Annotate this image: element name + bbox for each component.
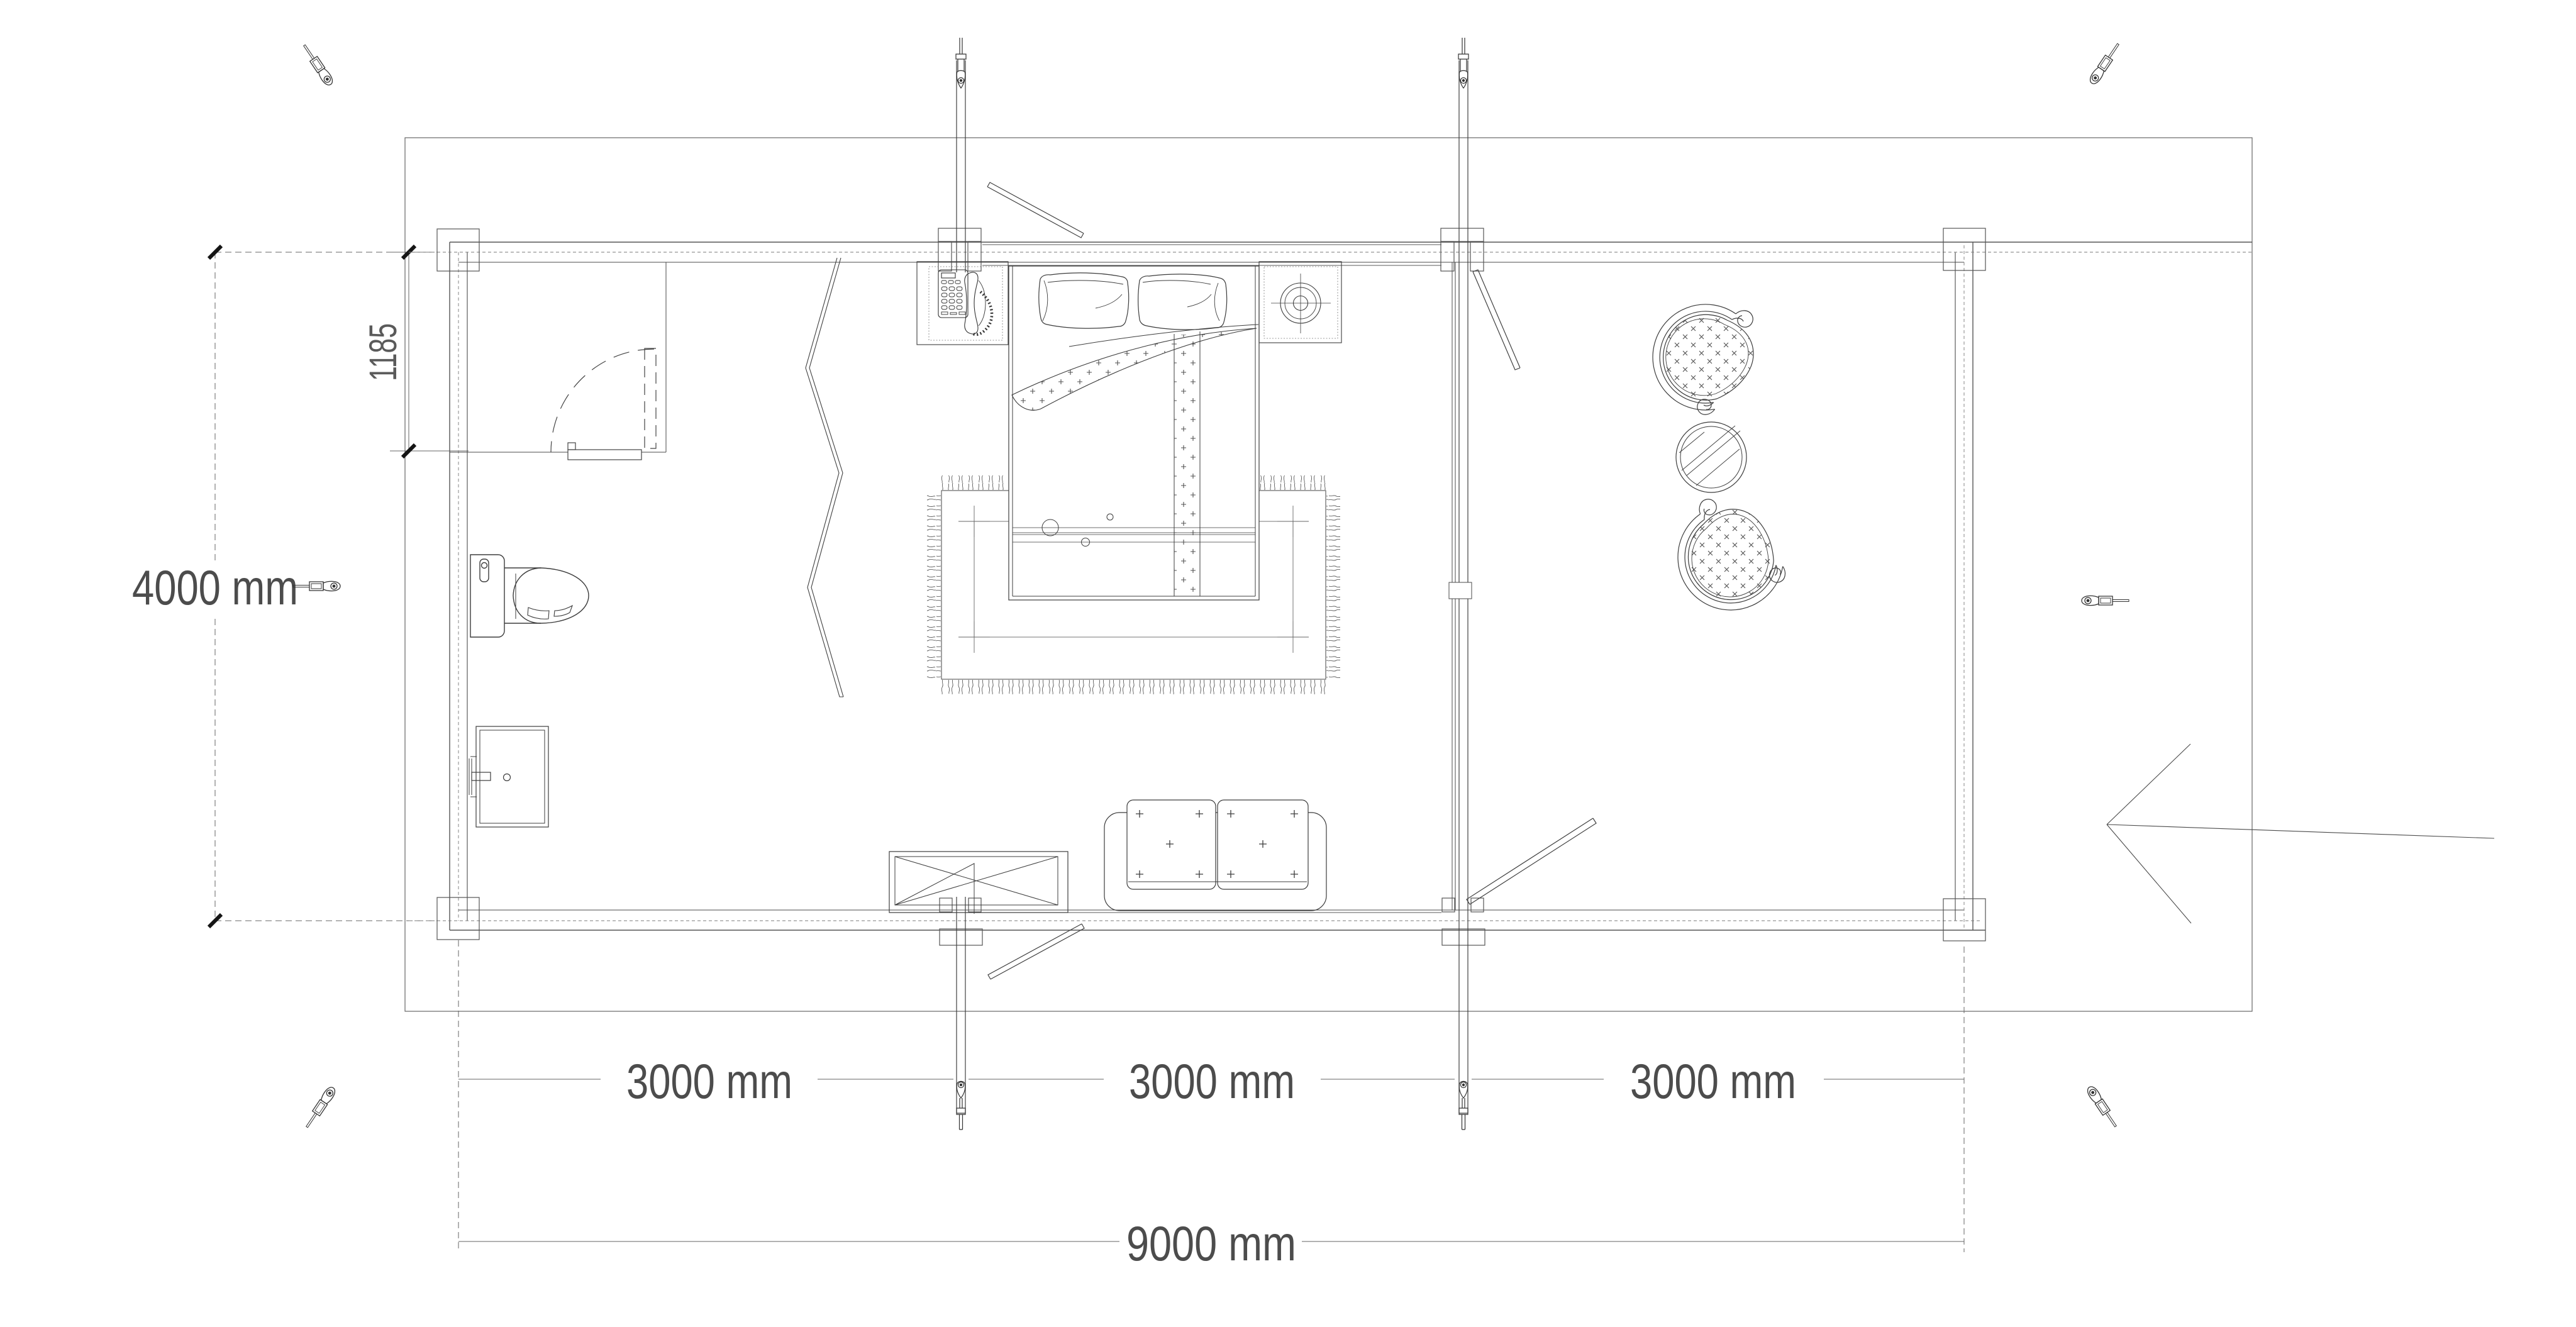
svg-text:3000 mm: 3000 mm: [1630, 1053, 1796, 1109]
svg-text:1185: 1185: [362, 323, 404, 381]
svg-text:3000 mm: 3000 mm: [626, 1053, 792, 1109]
svg-text:4000 mm: 4000 mm: [132, 560, 298, 615]
svg-text:3000 mm: 3000 mm: [1129, 1053, 1295, 1109]
svg-text:9000 mm: 9000 mm: [1126, 1216, 1296, 1271]
